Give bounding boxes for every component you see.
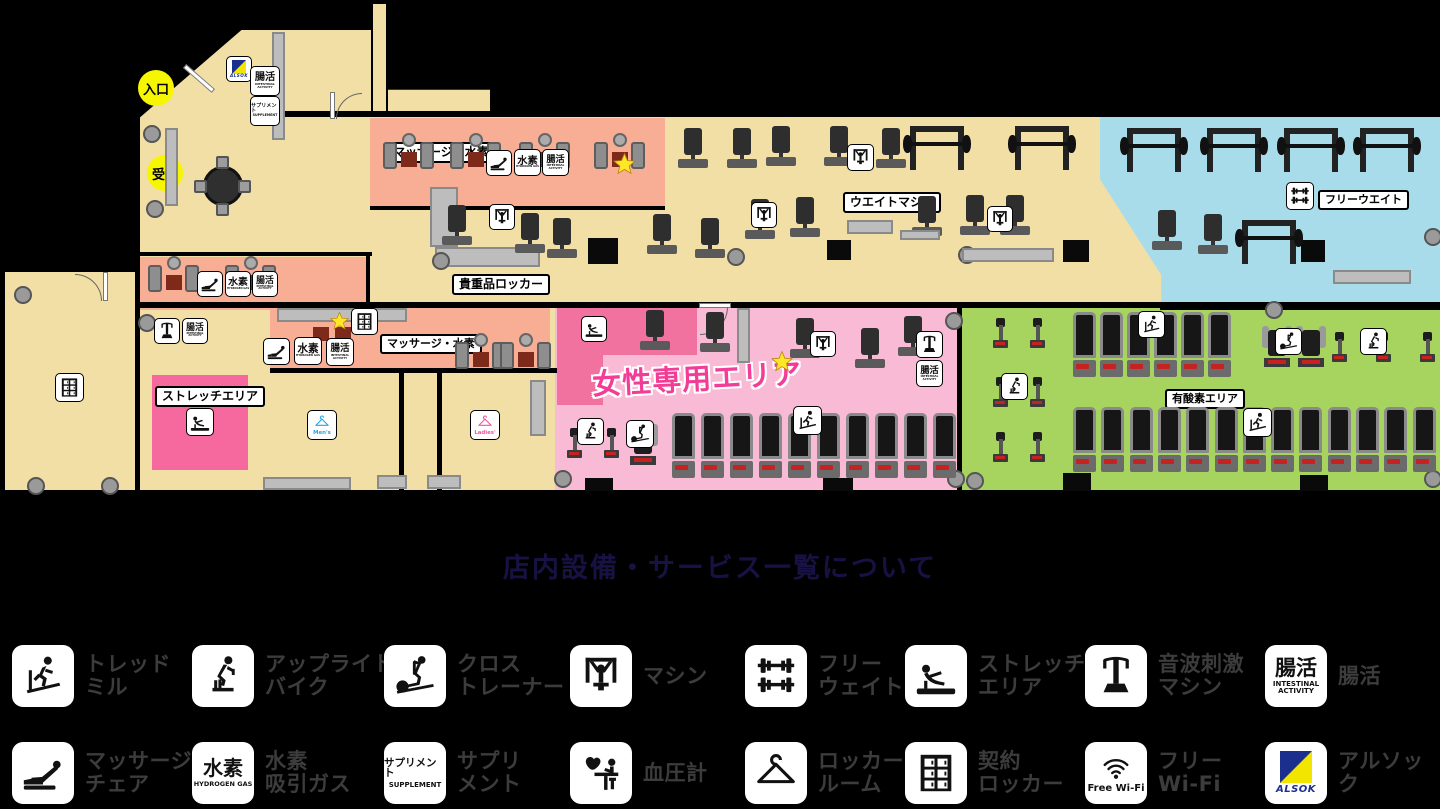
gym-floorplan-page: 入口 受付 マッサージ・水素 ウエイトマシン フリーウエイト 貴重品ロッカー マ…: [0, 0, 1440, 809]
legend-label: アップライトバイク: [265, 645, 394, 707]
weight-machine-unit: [700, 312, 730, 354]
entrance-marker-label: 入口: [143, 79, 169, 98]
door: [330, 92, 335, 119]
legend-item-locker-room: ロッカールーム: [745, 742, 904, 804]
legend-item-contract-locker: 契約ロッカー: [905, 742, 1064, 804]
machine-icon: [810, 331, 836, 357]
stretch-area-icon: [905, 645, 967, 707]
weight-machine-unit: [695, 218, 725, 260]
massage-chair-group: [148, 256, 200, 300]
free-weight-label: フリーウエイト: [1318, 190, 1409, 210]
structural-column: [588, 238, 618, 264]
legend-label: クロストレーナー: [457, 645, 565, 707]
treadmill-icon: [12, 645, 74, 707]
weight-machine-unit: [766, 126, 796, 168]
legend-label: 水素吸引ガス: [265, 742, 351, 804]
massage-chair-icon: [197, 271, 223, 297]
bench: [1333, 270, 1411, 284]
treadmill-unit: [1384, 407, 1407, 472]
pillar: [1424, 470, 1440, 488]
sonic-stimulation-machine-icon: [154, 318, 180, 344]
blood-pressure-icon: [570, 742, 632, 804]
pillar: [1265, 301, 1283, 319]
massage-chair-icon: [263, 338, 290, 365]
aerobic-area-label: 有酸素エリア: [1165, 389, 1245, 409]
legend-label: トレッドミル: [85, 645, 171, 707]
storage-shelf: [165, 128, 178, 206]
massage-chair-icon: [486, 150, 512, 176]
intestinal-activity-badge: 腸活 INTESTINALACTIVITY: [326, 338, 354, 366]
entrance-marker: 入口: [138, 70, 174, 106]
storage-shelf: [530, 380, 546, 436]
pillar: [554, 470, 572, 488]
supplement-badge: サプリメント SUPPLEMENT: [250, 96, 280, 126]
legend-item-stretch-area: ストレッチエリア: [905, 645, 1086, 707]
pillar: [727, 248, 745, 266]
machine-icon: [987, 206, 1013, 232]
legend-label: フリーWi-Fi: [1158, 742, 1223, 804]
storage-shelf: [263, 477, 351, 490]
wall: [366, 253, 370, 309]
treadmill-unit: [1158, 407, 1181, 472]
hydrogen-gas-icon: 水素HYDROGEN GAS: [192, 742, 254, 804]
power-rack-unit: [1240, 218, 1298, 268]
stretch-area-label: ストレッチエリア: [155, 386, 265, 407]
weight-machine-unit: [1152, 210, 1182, 252]
pillar: [14, 286, 32, 304]
upright-bike-unit: [993, 318, 1008, 350]
legend-label: フリーウェイト: [818, 645, 904, 707]
intestinal-activity-icon: 腸活INTESTINALACTIVITY: [1265, 645, 1327, 707]
star-marker: [329, 311, 350, 332]
power-rack-unit: [908, 124, 966, 174]
legend-label: マッサージチェア: [85, 742, 192, 804]
treadmill-unit: [672, 413, 695, 478]
intestinal-activity-badge: 腸活 INTESTINALACTIVITY: [542, 149, 569, 176]
treadmill-icon: [1243, 408, 1272, 437]
massage-chair-group: [383, 133, 435, 177]
door: [103, 272, 108, 301]
alsok-badge: ALSOK: [226, 56, 252, 82]
floor-plan: 入口 受付 マッサージ・水素 ウエイトマシン フリーウエイト 貴重品ロッカー マ…: [0, 0, 1440, 520]
legend-label: 契約ロッカー: [978, 742, 1064, 804]
legend-label: ストレッチエリア: [978, 645, 1086, 707]
weight-machine-unit: [960, 195, 990, 237]
ladies-room-badge: Ladies': [470, 410, 500, 440]
pillar: [432, 252, 450, 270]
locker-room-icon: [745, 742, 807, 804]
bench: [847, 220, 893, 234]
treadmill-unit: [1186, 407, 1209, 472]
massage-chair-group: [500, 333, 552, 377]
weight-machine-unit: [515, 213, 545, 255]
legend-label: 腸活: [1338, 645, 1381, 707]
wall: [1160, 306, 1440, 310]
structural-column: [823, 478, 853, 491]
reception-chair: [216, 203, 229, 216]
weight-machine-unit: [876, 128, 906, 170]
weight-machine-unit: [547, 218, 577, 260]
structural-column: [1301, 240, 1325, 262]
intestinal-activity-badge: 腸活 INTESTINALACTIVITY: [252, 271, 278, 297]
free-wifi-icon: Free Wi-Fi: [1085, 742, 1147, 804]
treadmill-unit: [759, 413, 782, 478]
treadmill-unit: [904, 413, 927, 478]
legend-item-free-wifi: Free Wi-FiフリーWi-Fi: [1085, 742, 1223, 804]
pillar: [143, 125, 161, 143]
treadmill-unit: [1100, 312, 1123, 377]
contract-locker-icon: [351, 308, 378, 335]
power-rack-unit: [1013, 124, 1071, 174]
storage-shelf: [427, 475, 461, 489]
legend-item-cross-trainer: クロストレーナー: [384, 645, 565, 707]
weight-machine-unit: [647, 214, 677, 256]
stretch-area-icon: [186, 408, 214, 436]
machine-icon: [751, 202, 777, 228]
treadmill-icon: [793, 406, 822, 435]
power-rack-unit: [1125, 126, 1183, 176]
structural-column: [827, 240, 851, 260]
pillar: [945, 312, 963, 330]
upright-bike-icon: [1360, 328, 1387, 355]
wall: [399, 368, 404, 490]
treadmill-icon: [1138, 311, 1165, 338]
upright-bike-unit: [1030, 377, 1045, 409]
upright-bike-icon: [1001, 373, 1028, 400]
legend-label: ロッカールーム: [818, 742, 904, 804]
legend-label: マシン: [643, 645, 708, 707]
legend-item-sonic-stimulation-machine: 音波刺激マシン: [1085, 645, 1244, 707]
wall: [957, 303, 962, 490]
weight-machine-unit: [640, 310, 670, 352]
weight-machine-unit: [790, 197, 820, 239]
weight-machine-unit: [727, 128, 757, 170]
valuables-locker-label: 貴重品ロッカー: [452, 274, 550, 295]
free-weight-icon: [1286, 182, 1314, 210]
cross-trainer-icon: [384, 645, 446, 707]
treadmill-unit: [1356, 407, 1379, 472]
reception-chair: [216, 156, 229, 169]
legend-item-alsok: ALSOKアルソック: [1265, 742, 1440, 804]
upright-bike-icon: [577, 418, 604, 445]
treadmill-unit: [701, 413, 724, 478]
treadmill-unit: [1215, 407, 1238, 472]
hydrogen-badge: 水素 HYDROGEN GAS: [225, 271, 251, 297]
star-marker: [770, 350, 794, 374]
legend-item-supplement: サプリメントSUPPLEMENTサプリメント: [384, 742, 522, 804]
legend-item-treadmill: トレッドミル: [12, 645, 171, 707]
treadmill-unit: [1181, 312, 1204, 377]
structural-column: [1300, 475, 1328, 491]
treadmill-unit: [1271, 407, 1294, 472]
legend-item-machine: マシン: [570, 645, 708, 707]
legend-item-hydrogen-gas: 水素HYDROGEN GAS水素吸引ガス: [192, 742, 351, 804]
power-rack-unit: [1282, 126, 1340, 176]
treadmill-unit: [1101, 407, 1124, 472]
mens-room-badge: Men's: [307, 410, 337, 440]
upright-bike-unit: [1030, 318, 1045, 350]
treadmill-unit: [730, 413, 753, 478]
treadmill-unit: [1328, 407, 1351, 472]
legend-item-free-weight: フリーウェイト: [745, 645, 904, 707]
legend-label: サプリメント: [457, 742, 522, 804]
legend-item-intestinal-activity: 腸活INTESTINALACTIVITY腸活: [1265, 645, 1381, 707]
top-corridor-column: [371, 2, 388, 118]
weight-machine-unit: [442, 205, 472, 247]
weight-machine-unit: [678, 128, 708, 170]
pillar: [1424, 228, 1440, 246]
upright-bike-unit: [993, 432, 1008, 464]
machine-icon: [847, 144, 874, 171]
storage-shelf: [737, 308, 750, 363]
treadmill-unit: [846, 413, 869, 478]
pillar: [27, 477, 45, 495]
structural-column: [1063, 240, 1089, 262]
free-weight-icon: [745, 645, 807, 707]
structural-column: [1063, 473, 1091, 491]
pillar: [966, 472, 984, 490]
treadmill-unit: [1073, 312, 1096, 377]
structural-column: [585, 478, 613, 491]
supplement-icon: サプリメントSUPPLEMENT: [384, 742, 446, 804]
sonic-stimulation-machine-icon: [1085, 645, 1147, 707]
massage-chair-icon: [12, 742, 74, 804]
cross-trainer-icon: [1275, 328, 1302, 355]
pillar: [146, 200, 164, 218]
alsok-icon: ALSOK: [1265, 742, 1327, 804]
hydrogen-badge: 水素 HYDROGEN GAS: [514, 149, 541, 176]
upright-bike-unit: [604, 428, 619, 460]
legend-item-upright-bike: アップライトバイク: [192, 645, 394, 707]
contract-locker-icon: [905, 742, 967, 804]
weight-machine-unit: [855, 328, 885, 370]
upright-bike-icon: [192, 645, 254, 707]
treadmill-unit: [1208, 312, 1231, 377]
treadmill-unit: [933, 413, 956, 478]
legend-label: 音波刺激マシン: [1158, 645, 1244, 707]
wall: [370, 206, 665, 210]
upright-bike-unit: [1332, 332, 1347, 364]
wall: [285, 111, 1440, 117]
bench: [900, 230, 940, 240]
bench: [962, 248, 1054, 262]
hydrogen-badge: 水素 HYDROGEN GAS: [294, 337, 322, 365]
legend-label: アルソック: [1338, 742, 1440, 804]
wall: [437, 368, 442, 490]
reception-chair: [194, 180, 207, 193]
power-rack-unit: [1205, 126, 1263, 176]
storage-shelf: [377, 475, 407, 489]
machine-icon: [489, 204, 515, 230]
treadmill-unit: [1413, 407, 1436, 472]
reception-chair: [238, 180, 251, 193]
treadmill-unit: [875, 413, 898, 478]
weight-machine-unit: [1198, 214, 1228, 256]
power-rack-unit: [1358, 126, 1416, 176]
machine-icon: [570, 645, 632, 707]
page-title: 店内設備・サービス一覧について: [0, 546, 1440, 585]
contract-locker-icon: [55, 373, 84, 402]
intestinal-activity-badge: 腸活 INTESTINALACTIVITY: [916, 360, 943, 387]
reception-table: [203, 166, 243, 206]
intestinal-activity-badge: 腸活 INTESTINALACTIVITY: [250, 66, 280, 96]
treadmill-unit: [1299, 407, 1322, 472]
upright-bike-unit: [1030, 432, 1045, 464]
cross-trainer-icon: [626, 420, 654, 448]
stretch-area-icon: [581, 316, 607, 342]
legend-item-blood-pressure: 血圧計: [570, 742, 708, 804]
treadmill-unit: [1130, 407, 1153, 472]
pillar: [101, 477, 119, 495]
star-marker: [612, 152, 637, 177]
legend-item-massage-chair: マッサージチェア: [12, 742, 192, 804]
sonic-stimulation-machine-icon: [916, 331, 943, 358]
intestinal-activity-badge: 腸活 INTESTINALACTIVITY: [182, 318, 208, 344]
legend-label: 血圧計: [643, 742, 708, 804]
upright-bike-unit: [1420, 332, 1435, 364]
treadmill-unit: [1073, 407, 1096, 472]
